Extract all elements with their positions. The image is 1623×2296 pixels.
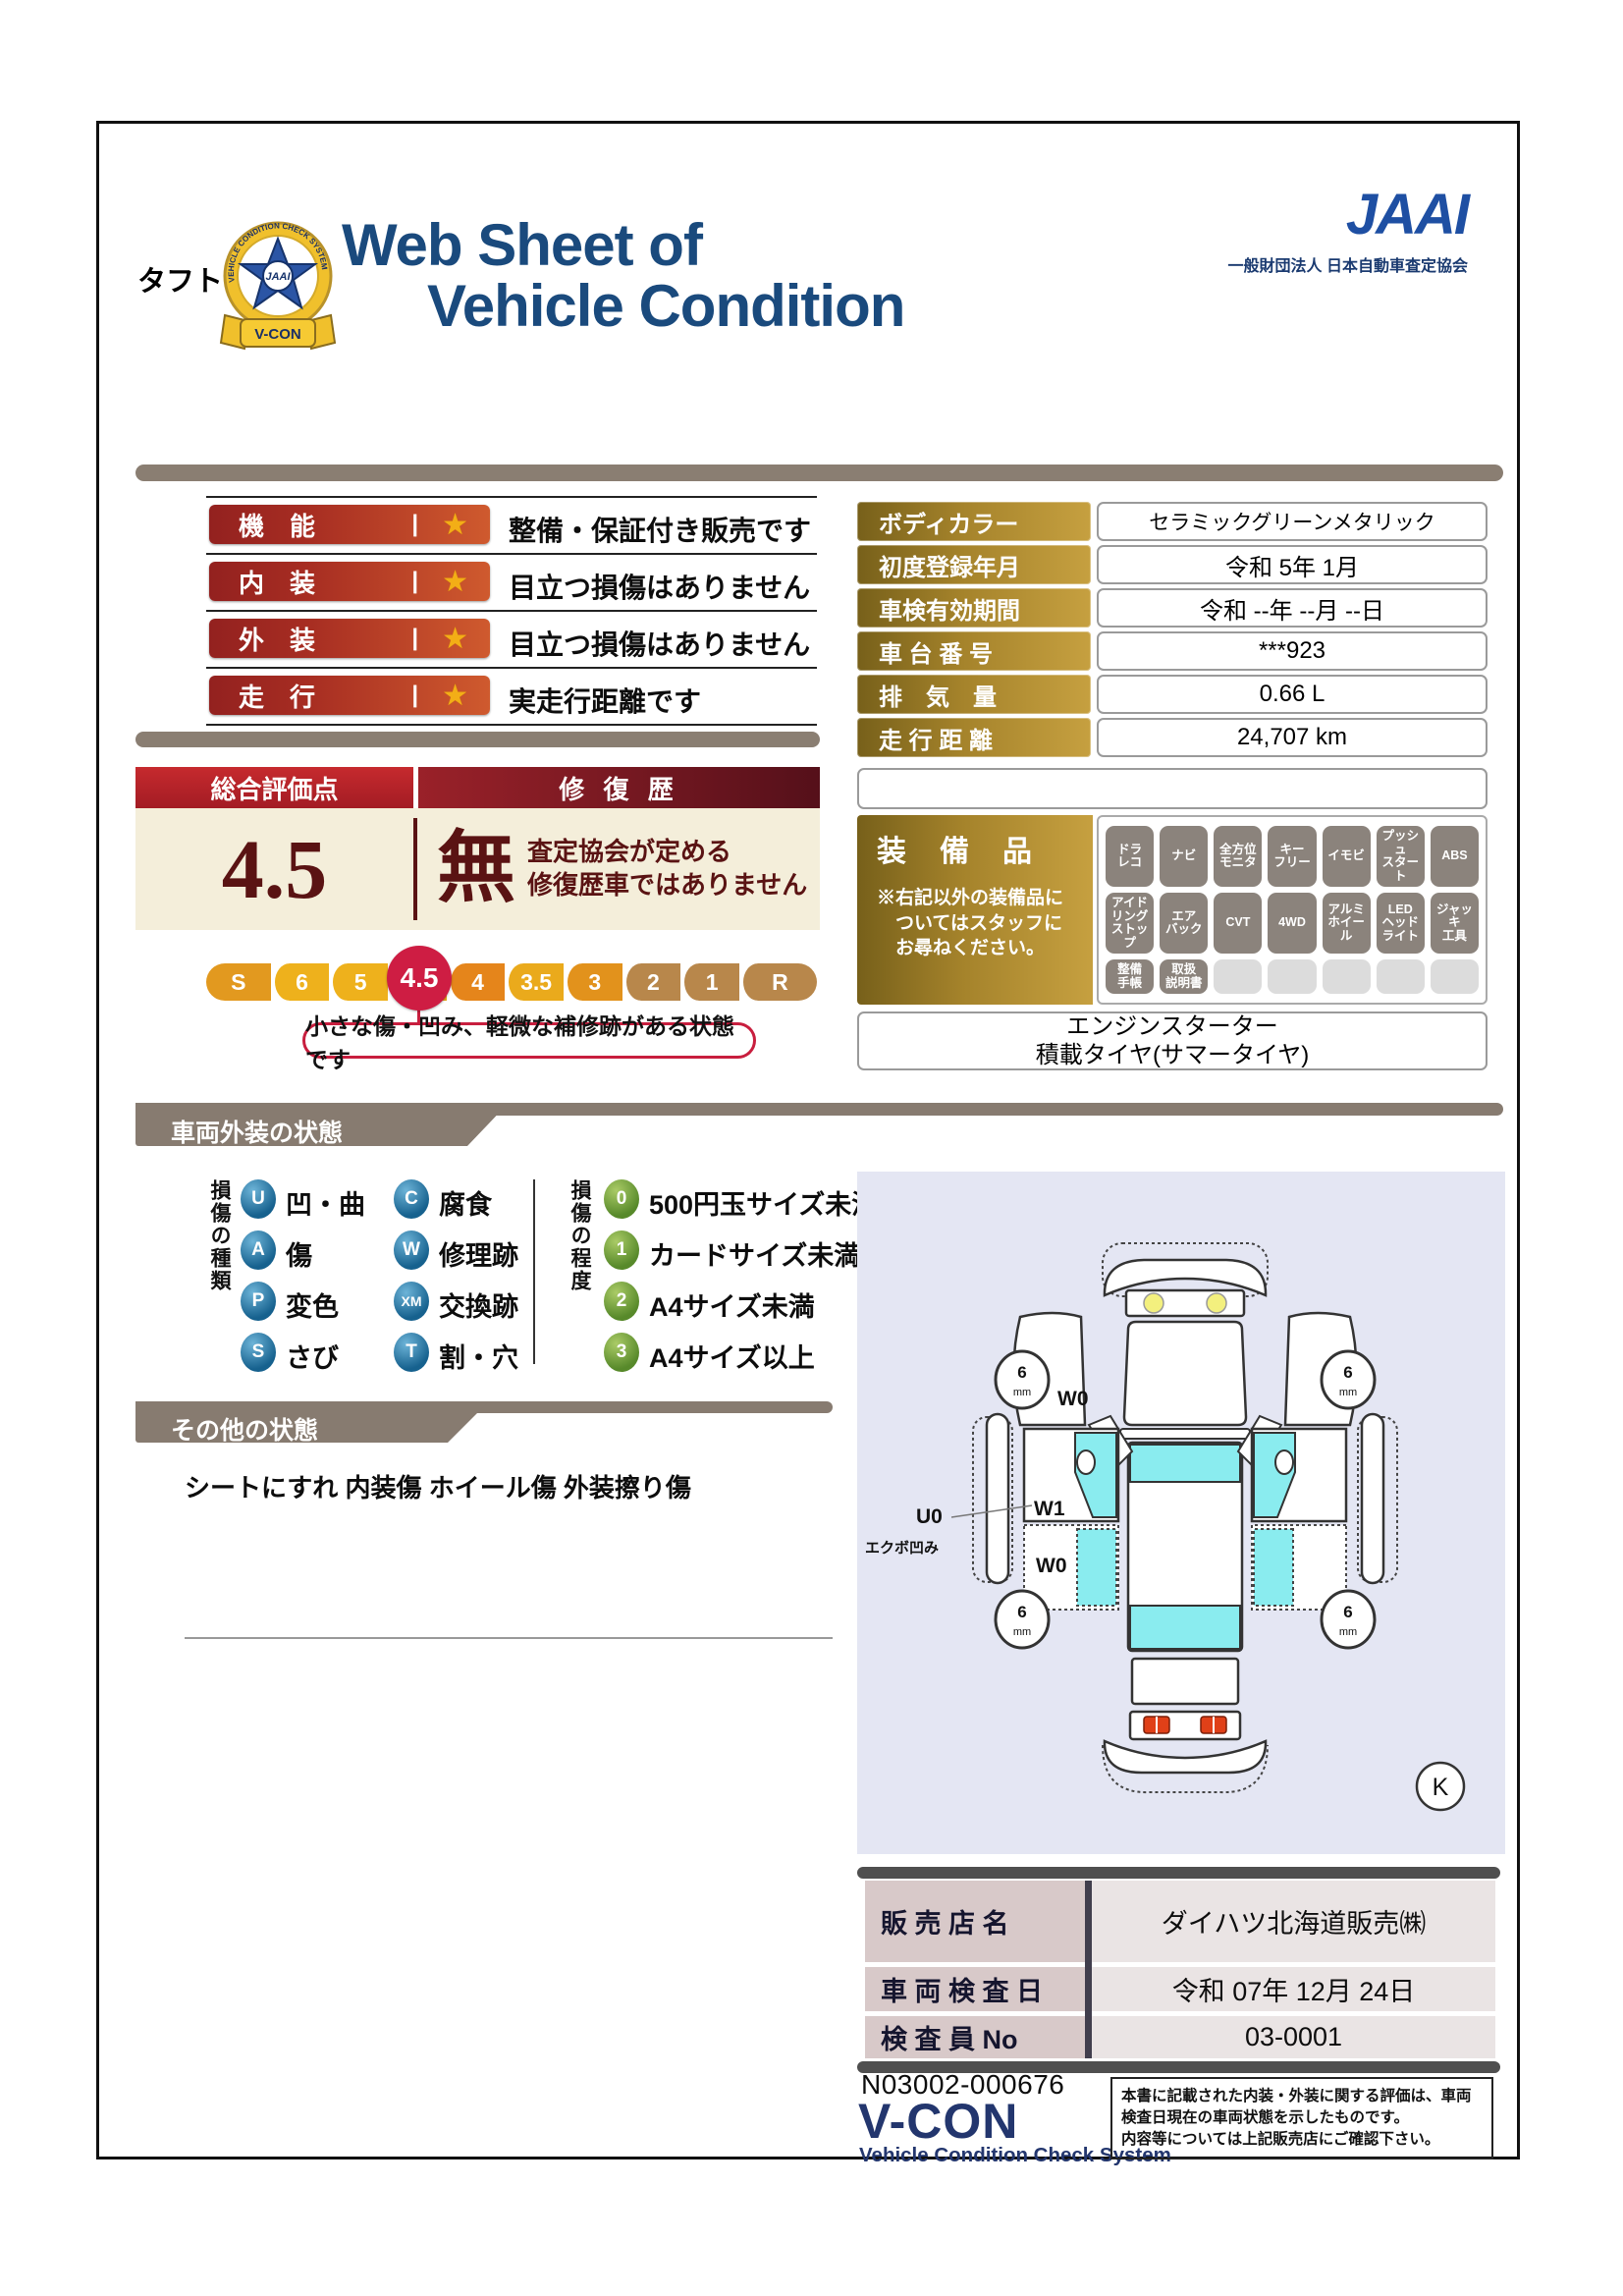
equipment-note: ※右記以外の装備品に ついてはスタッフに お尋ねください。 xyxy=(877,886,1093,961)
rating-separator xyxy=(206,610,817,612)
damage-code-badge: S xyxy=(241,1333,276,1372)
damage-type-text: さび xyxy=(286,1337,339,1375)
rating-description: 実走行距離です xyxy=(509,681,701,720)
legend-divider xyxy=(533,1179,535,1364)
extra-equipment-line: 積載タイヤ(サマータイヤ) xyxy=(1036,1041,1310,1069)
rating-description: 整備・保証付き販売です xyxy=(509,510,811,549)
tire-depth-unit: mm xyxy=(1339,1387,1357,1398)
equipment-panel-title: 装 備 品 ※右記以外の装備品に ついてはスタッフに お尋ねください。 xyxy=(857,815,1093,1005)
star-icon: ★ xyxy=(442,679,468,713)
hood xyxy=(1124,1322,1246,1425)
equipment-badge: 整備 手帳 xyxy=(1106,959,1154,994)
vcon-footer-logo: V-CON xyxy=(858,2093,1018,2150)
equipment-badge: キー フリー xyxy=(1268,826,1316,887)
damage-code-badge: P xyxy=(241,1282,276,1321)
other-condition-text: シートにすれ 内装傷 ホイール傷 外装擦り傷 xyxy=(185,1468,691,1504)
equipment-badge-empty xyxy=(1431,959,1479,994)
scale-segment: 3 xyxy=(564,963,622,1001)
tailgate xyxy=(1132,1659,1238,1704)
page-frame: VEHICLE CONDITION CHECK SYSTEM JAAI V-CO… xyxy=(96,121,1520,2159)
overall-score-title: 総合評価点 xyxy=(135,767,413,808)
footer-note-line: 検査日現在の車両状態を示したものです。 xyxy=(1121,2107,1483,2129)
info-value: 24,707 km xyxy=(1097,718,1488,757)
info-label: 車検有効期間 xyxy=(857,588,1091,628)
scale-segment: 6 xyxy=(271,963,330,1001)
repair-history-value: 無 xyxy=(437,830,515,908)
page-title-line2: Vehicle Condition xyxy=(427,272,904,340)
equipment-badge: ジャッキ 工具 xyxy=(1431,893,1479,954)
section-title-other: その他の状態 xyxy=(135,1401,489,1443)
equipment-badge: イモビ xyxy=(1323,826,1371,887)
rating-pill-exterior: 外 装 | ★ xyxy=(209,619,490,658)
equipment-title: 装 備 品 xyxy=(877,827,1093,870)
equipment-badge-empty xyxy=(1268,959,1316,994)
damage-type-text: 傷 xyxy=(286,1234,312,1273)
repair-history-note: 査定協会が定める 修復歴車ではありません xyxy=(527,836,807,902)
sales-label: 車 両 検 査 日 xyxy=(865,1967,1085,2011)
windshield-glass xyxy=(1130,1445,1240,1482)
equipment-badge: プッシュ スタート xyxy=(1377,826,1425,887)
equipment-badge: ABS xyxy=(1431,826,1479,887)
damage-mark-front-door: W0 xyxy=(1057,1388,1089,1410)
rating-divider: | xyxy=(411,568,418,595)
degree-code-badge: 0 xyxy=(604,1179,639,1219)
score-scale: S 6 5 4 3.5 3 2 1 R xyxy=(206,963,817,1001)
equipment-badge-empty xyxy=(1377,959,1425,994)
degree-code-badge: 1 xyxy=(604,1230,639,1270)
sales-value: ダイハツ北海道販売㈱ xyxy=(1092,1881,1495,1962)
score-callout: 小さな傷・凹み、軽微な補修跡がある状態です xyxy=(302,1022,756,1059)
scale-segment: 1 xyxy=(680,963,739,1001)
left-rocker xyxy=(987,1414,1008,1583)
tire-depth-unit: mm xyxy=(1013,1387,1031,1398)
star-icon: ★ xyxy=(442,508,468,542)
tire-depth-value: 6 xyxy=(1017,1363,1026,1382)
repair-history-title: 修 復 歴 xyxy=(418,767,820,808)
sales-value: 03-0001 xyxy=(1092,2016,1495,2058)
vcon-ribbon-label: V-CON xyxy=(254,326,301,343)
equipment-badge-empty xyxy=(1214,959,1262,994)
damage-type-text: 腐食 xyxy=(439,1183,492,1222)
footer-note-box: 本書に記載された内装・外装に関する評価は、車両 検査日現在の車両状態を示したもの… xyxy=(1110,2077,1493,2159)
equipment-badge: ナビ xyxy=(1160,826,1208,887)
damage-degree-group-label: 損傷の程度 xyxy=(565,1179,594,1337)
damage-code-badge: XM xyxy=(394,1282,429,1321)
degree-text: 500円玉サイズ未満 xyxy=(649,1183,878,1222)
overall-score-body: 4.5 無 査定協会が定める 修復歴車ではありません xyxy=(135,808,820,930)
damage-mark-mid-door: W1 xyxy=(1034,1498,1065,1520)
damage-type-text: 変色 xyxy=(286,1285,339,1324)
rating-pill-interior: 内 装 | ★ xyxy=(209,562,490,601)
scale-segment: R xyxy=(739,963,817,1001)
rating-label: 機 能 xyxy=(239,507,411,543)
right-rocker xyxy=(1362,1414,1383,1583)
overall-score-header: 総合評価点 修 復 歴 xyxy=(135,767,820,808)
degree-code-badge: 2 xyxy=(604,1282,639,1321)
info-label: 走 行 距 離 xyxy=(857,718,1091,757)
damage-type-text: 凹・曲 xyxy=(286,1183,365,1222)
equipment-badge: ドラ レコ xyxy=(1106,826,1154,887)
damage-code-badge: A xyxy=(241,1230,276,1270)
rating-separator xyxy=(206,496,817,498)
damage-code-badge: W xyxy=(394,1230,429,1270)
equipment-badge: 取扱 説明書 xyxy=(1160,959,1208,994)
damage-code-badge: U xyxy=(241,1179,276,1219)
equipment-badge: エア バック xyxy=(1160,893,1208,954)
overall-score-value: 4.5 xyxy=(135,808,413,930)
info-label: 排 気 量 xyxy=(857,675,1091,714)
sales-value: 令和 07年 12月 24日 xyxy=(1092,1967,1495,2011)
rating-label: 走 行 xyxy=(239,678,411,714)
marker-pointer xyxy=(417,1009,420,1024)
section-title-exterior: 車両外装の状態 xyxy=(135,1103,509,1146)
scale-segment: 3.5 xyxy=(505,963,564,1001)
headlight-left xyxy=(1144,1293,1163,1313)
tire-depth-unit: mm xyxy=(1339,1626,1357,1638)
info-value: 0.66 L xyxy=(1097,675,1488,714)
equipment-badge: 4WD xyxy=(1268,893,1316,954)
rating-label: 外 装 xyxy=(239,621,411,657)
equipment-badge-empty xyxy=(1323,959,1371,994)
scale-segment: 5 xyxy=(329,963,388,1001)
right-mirror xyxy=(1275,1450,1293,1474)
degree-text: A4サイズ以上 xyxy=(649,1337,815,1375)
footer-note-line: 内容等については上記販売店にご確認下さい。 xyxy=(1121,2129,1483,2151)
rating-pill-mileage: 走 行 | ★ xyxy=(209,676,490,715)
rating-label: 内 装 xyxy=(239,564,411,600)
info-label: 車 台 番 号 xyxy=(857,631,1091,671)
vehicle-name: タフト xyxy=(137,258,223,300)
equipment-badge: CVT xyxy=(1214,893,1262,954)
info-value: 令和 5年 1月 xyxy=(1097,545,1488,584)
star-icon: ★ xyxy=(442,622,468,656)
degree-text: A4サイズ未満 xyxy=(649,1285,815,1324)
rating-separator xyxy=(206,553,817,555)
car-diagram-svg: 6 mm 6 mm 6 mm 6 mm W0 W1 U0 エクボ凹み W0 K xyxy=(857,1172,1505,1854)
left-rear-window xyxy=(1077,1529,1116,1606)
sales-table-divider xyxy=(1085,1881,1092,2058)
scale-segment: S xyxy=(206,963,271,1001)
rating-separator xyxy=(206,667,817,669)
damage-type-text: 割・穴 xyxy=(439,1337,518,1375)
damage-type-text: 交換跡 xyxy=(439,1285,518,1324)
tire-depth-value: 6 xyxy=(1017,1603,1026,1621)
rating-pill-function: 機 能 | ★ xyxy=(209,505,490,544)
damage-type-text: 修理跡 xyxy=(439,1234,518,1273)
rating-divider: | xyxy=(411,682,418,709)
equipment-badge: LED ヘッド ライト xyxy=(1377,893,1425,954)
page-title-line1: Web Sheet of xyxy=(342,211,702,279)
rating-description: 目立つ損傷はありません xyxy=(509,624,810,663)
scale-segment: 4 xyxy=(447,963,506,1001)
equipment-badge-grid: ドラ レコ ナビ 全方位 モニタ キー フリー イモビ プッシュ スタート AB… xyxy=(1097,815,1488,1005)
rating-description: 目立つ損傷はありません xyxy=(509,567,810,606)
info-value: セラミックグリーンメタリック xyxy=(1097,502,1488,541)
divider-bar-top xyxy=(135,465,1503,481)
rear-bumper xyxy=(1105,1741,1266,1773)
info-label: 初度登録年月 xyxy=(857,545,1091,584)
rating-divider: | xyxy=(411,625,418,652)
extra-equipment-box: エンジンスターター 積載タイヤ(サマータイヤ) xyxy=(857,1011,1488,1070)
info-label: ボディカラー xyxy=(857,502,1091,541)
left-mirror xyxy=(1077,1450,1095,1474)
degree-text: カードサイズ未満 xyxy=(649,1234,860,1273)
left-column-rule xyxy=(185,1637,833,1639)
damage-code-badge: C xyxy=(394,1179,429,1219)
footer-note-line: 本書に記載された内装・外装に関する評価は、車両 xyxy=(1121,2086,1483,2107)
extra-equipment-line: エンジンスターター xyxy=(1066,1012,1278,1041)
info-empty-box xyxy=(857,768,1488,809)
car-condition-diagram: 6 mm 6 mm 6 mm 6 mm W0 W1 U0 エクボ凹み W0 K xyxy=(857,1172,1505,1854)
tire-depth-value: 6 xyxy=(1343,1363,1352,1382)
svg-text:JAAI: JAAI xyxy=(265,271,291,283)
current-score-marker: 4.5 xyxy=(387,946,452,1011)
info-value: ***923 xyxy=(1097,631,1488,671)
damage-mark-dent: U0 xyxy=(916,1505,943,1528)
damage-code-badge: T xyxy=(394,1333,429,1372)
sales-table-top-bar xyxy=(857,1867,1500,1879)
headlight-right xyxy=(1207,1293,1226,1313)
rating-separator xyxy=(206,724,817,726)
damage-dent-note: エクボ凹み xyxy=(865,1540,939,1557)
tire-depth-value: 6 xyxy=(1343,1603,1352,1621)
jaai-subtitle: 一般財団法人 日本自動車査定協会 xyxy=(1193,252,1468,276)
degree-code-badge: 3 xyxy=(604,1333,639,1372)
damage-mark-rear-door: W0 xyxy=(1036,1555,1067,1577)
cowl xyxy=(1120,1429,1250,1439)
divider-bar-left xyxy=(135,732,820,747)
damage-type-group-label: 損傷の種類 xyxy=(204,1179,234,1337)
equipment-badge: アイド リング ストップ xyxy=(1106,893,1154,954)
corner-mark: K xyxy=(1433,1774,1449,1801)
sales-label: 検 査 員 No xyxy=(865,2016,1085,2058)
equipment-badge: アルミ ホイール xyxy=(1323,893,1371,954)
right-side-group xyxy=(1238,1313,1397,1648)
vcon-badge-logo: VEHICLE CONDITION CHECK SYSTEM JAAI V-CO… xyxy=(219,217,337,362)
jaai-logo: JAAI xyxy=(1211,182,1468,247)
info-value: 令和 --年 --月 --日 xyxy=(1097,588,1488,628)
rear-glass xyxy=(1130,1606,1240,1649)
sales-label: 販 売 店 名 xyxy=(865,1881,1085,1962)
scale-segment: 2 xyxy=(622,963,681,1001)
equipment-badge: 全方位 モニタ xyxy=(1214,826,1262,887)
star-icon: ★ xyxy=(442,565,468,599)
right-rear-window xyxy=(1254,1529,1293,1606)
tire-depth-unit: mm xyxy=(1013,1626,1031,1638)
rating-divider: | xyxy=(411,511,418,538)
